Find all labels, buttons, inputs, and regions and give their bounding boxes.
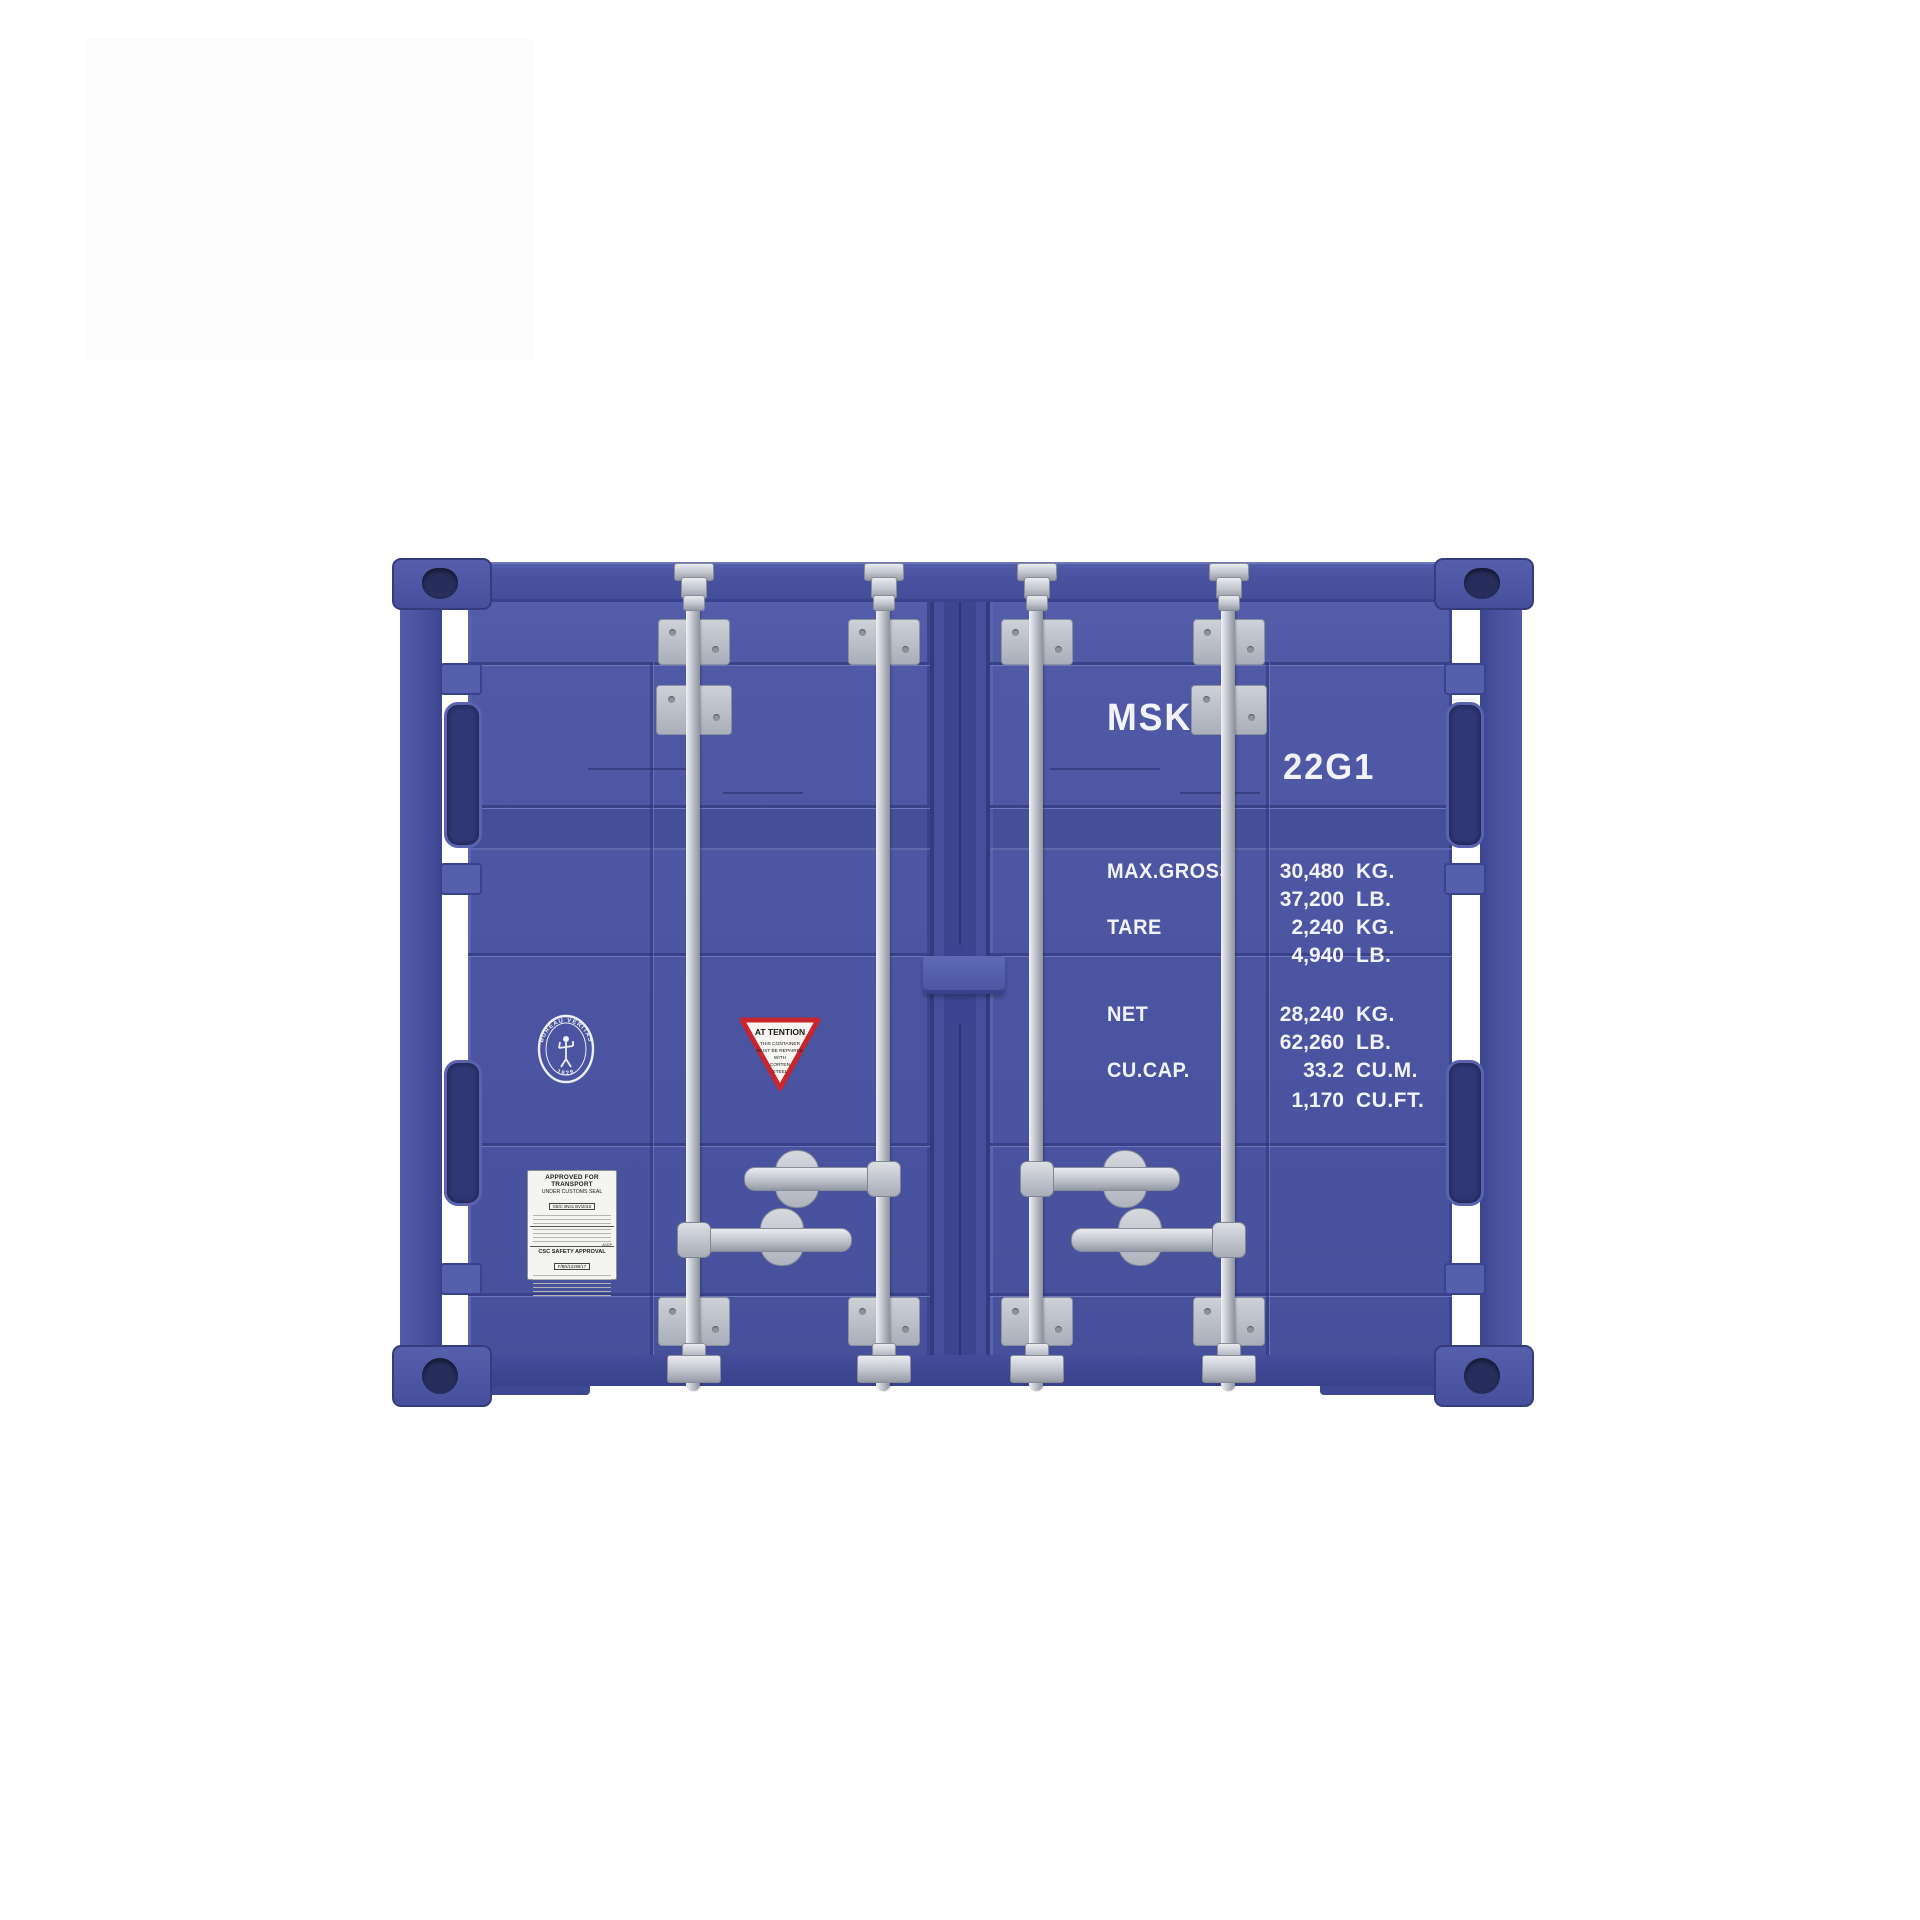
lockrod-4 [1221,565,1235,1391]
rail-clip-right-3 [1444,1263,1486,1295]
spec-unit: KG. [1356,1003,1395,1027]
lockrod-3-top-cam [1026,595,1048,611]
warning-line: WITH [774,1055,787,1061]
spec-label-net: NET [1107,1003,1148,1027]
customs-plate-line1: APPROVED FOR TRANSPORT [530,1174,614,1188]
door-handle-right-upper [1032,1167,1180,1191]
warning-sticker: AT TENTION THIS CONTAINER MUST BE REPAIR… [738,1013,822,1093]
spec-unit: KG. [1356,916,1395,940]
handle-hub-left-upper [867,1161,901,1197]
spec-label-tare: TARE [1107,916,1162,940]
spec-value: 4,940 [1232,944,1344,968]
backdrop-card [88,40,532,358]
lockrod-3-bottom-cam [1010,1355,1064,1383]
spec-value: 33.2 [1232,1059,1344,1083]
casting-hole [422,1358,458,1394]
door-stop-bracket [923,956,1005,994]
spec-unit: KG. [1356,860,1395,884]
panel-dash [1050,768,1160,770]
csc-plate-number: F/BN/13396/17 [554,1263,590,1270]
plate-divider [530,1226,614,1227]
customs-plate-line2: UNDER CUSTOMS SEAL [530,1189,614,1195]
shipping-container: MSKU 572952 0 22G1 MAX.GROSS 30,480 KG. … [394,557,1528,1419]
spec-value: 37,200 [1232,888,1344,912]
lockrod-2-top-cam [873,595,895,611]
svg-text:1828: 1828 [556,1069,576,1077]
csc-plate-title: CSC SAFETY APPROVAL [530,1249,614,1255]
warning-line: MUST BE REPAIRED [757,1048,804,1054]
warning-line: THIS CONTAINER [760,1041,801,1047]
lockrod-1-top-cam [683,595,705,611]
logo-year: 1828 [556,1069,576,1077]
handle-hub-left-lower [677,1222,711,1258]
corner-casting-top-right [1434,558,1534,610]
top-rail [440,562,1480,602]
warning-title: AT TENTION [755,1027,805,1037]
spec-unit: LB. [1356,1031,1391,1055]
rail-clip-left-3 [440,1263,482,1295]
lashing-slot-left-lower [444,1060,482,1206]
spec-value: 30,480 [1232,860,1344,884]
lockrod-1 [686,565,700,1391]
lockrod-4-bottom-cam [1202,1355,1256,1383]
casting-hole [1464,1358,1500,1394]
spec-value: 62,260 [1232,1031,1344,1055]
bureau-veritas-logo: BUREAU VERITAS 1828 [537,1014,595,1084]
corner-casting-bottom-left [392,1345,492,1407]
corner-casting-bottom-right [1434,1345,1534,1407]
scene: MSKU 572952 0 22G1 MAX.GROSS 30,480 KG. … [0,0,1920,1920]
corner-post-left [400,600,442,1352]
lashing-slot-right-lower [1446,1060,1484,1206]
plate-fine-print [533,1275,610,1297]
panel-dash [723,792,803,794]
lashing-slot-right-upper [1446,702,1484,848]
warning-line: CORTEN [770,1062,791,1068]
corner-post-right [1480,600,1522,1352]
plate-fine-print [533,1229,610,1244]
spec-label-max-gross: MAX.GROSS [1107,860,1233,884]
corner-casting-top-left [392,558,492,610]
csc-plate-column-header: ACEP [602,1243,612,1247]
handle-hub-right-lower [1212,1222,1246,1258]
rail-clip-left-2 [440,863,482,895]
spec-value: 2,240 [1232,916,1344,940]
spec-unit: CU.FT. [1356,1089,1424,1113]
rail-clip-right-1 [1444,663,1486,695]
spec-unit: LB. [1356,944,1391,968]
lashing-slot-left-upper [444,702,482,848]
spec-value: 28,240 [1232,1003,1344,1027]
rail-clip-left-1 [440,663,482,695]
lockrod-2-bottom-cam [857,1355,911,1383]
door-handle-right-lower [1071,1228,1230,1252]
lockrod-1-bottom-cam [667,1355,721,1383]
casting-hole [1464,568,1500,599]
spec-unit: CU.M. [1356,1059,1418,1083]
door-panel-seam [650,662,653,1355]
door-handle-left-lower [693,1228,852,1252]
warning-line: STEEL [772,1069,788,1075]
lockrod-4-top-cam [1218,595,1240,611]
spec-unit: LB. [1356,888,1391,912]
logo-figure-body [559,1041,573,1067]
csc-approval-plate: APPROVED FOR TRANSPORT UNDER CUSTOMS SEA… [527,1170,617,1280]
spec-value: 1,170 [1232,1089,1344,1113]
spec-label-cu-cap: CU.CAP. [1107,1059,1190,1083]
lockrod-3 [1029,565,1043,1391]
lockrod-2 [876,565,890,1391]
plate-fine-print [533,1215,610,1224]
logo-figure-head [563,1036,569,1042]
rail-clip-right-2 [1444,863,1486,895]
customs-plate-code: GB/C 8N41 BV/2018 [549,1203,596,1210]
panel-dash [588,768,698,770]
casting-hole [422,568,458,599]
handle-hub-right-upper [1020,1161,1054,1197]
panel-dash [1180,792,1260,794]
size-type-code: 22G1 [1283,746,1375,788]
